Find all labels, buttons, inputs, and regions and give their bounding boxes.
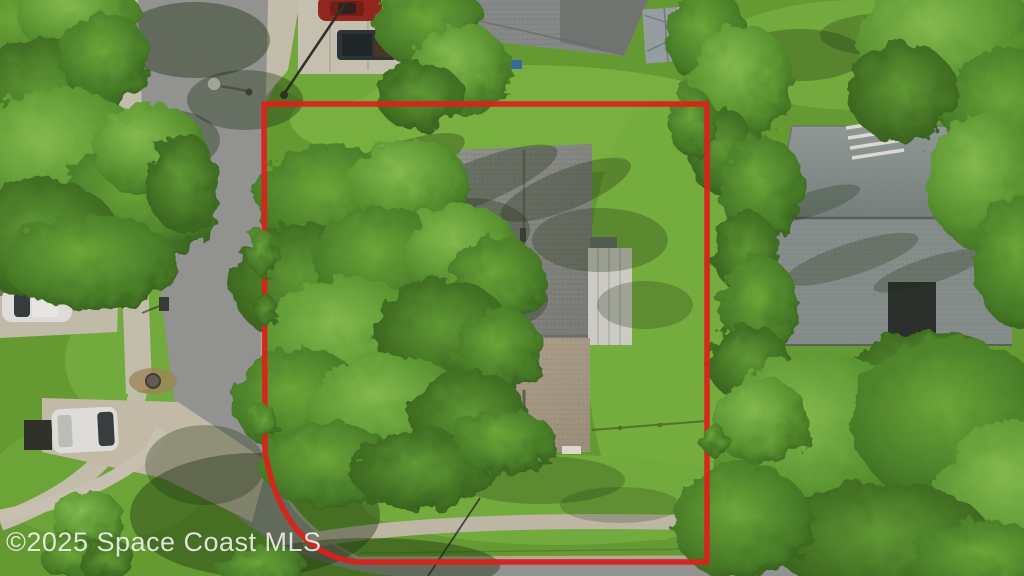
photo-grain-overlay <box>0 0 1024 576</box>
aerial-photo: ©2025 Space Coast MLS <box>0 0 1024 576</box>
aerial-photo-canvas <box>0 0 1024 576</box>
